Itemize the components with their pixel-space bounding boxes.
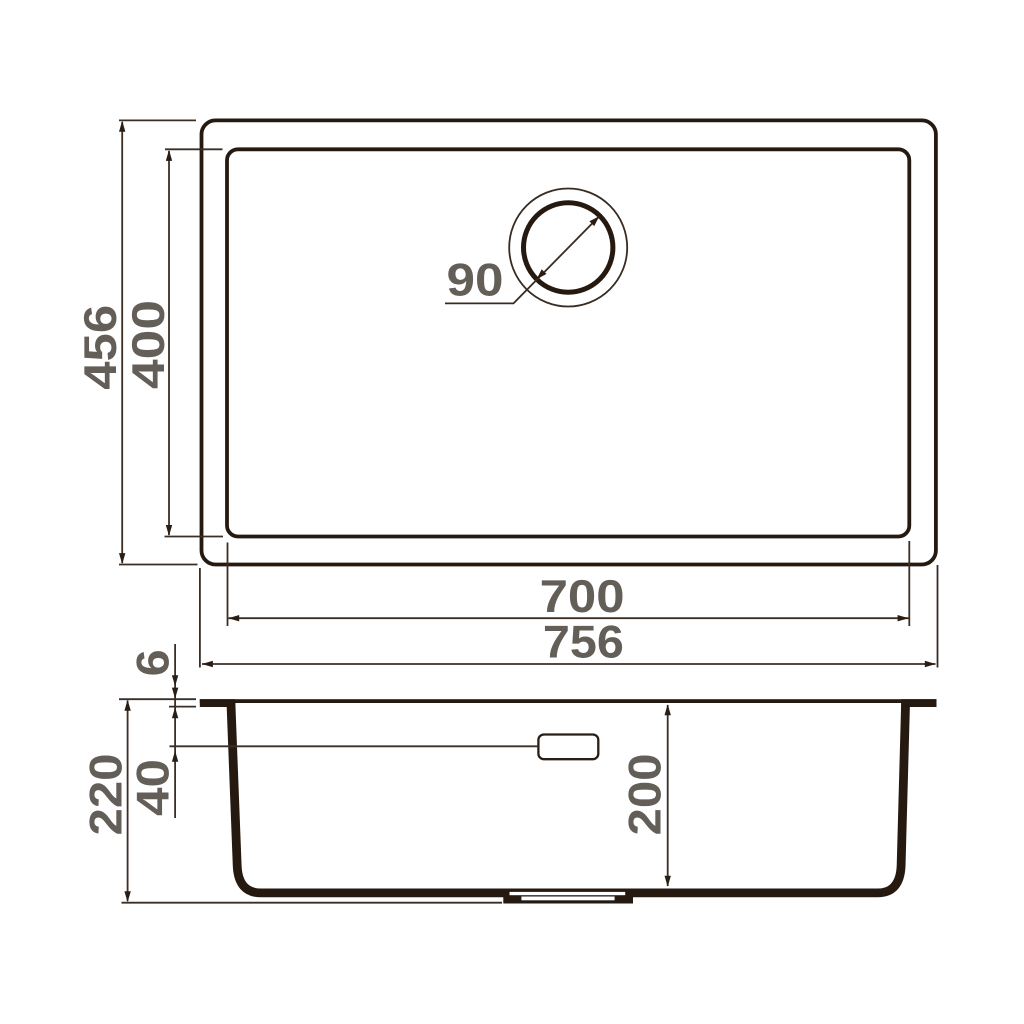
svg-text:756: 756 xyxy=(543,616,624,668)
svg-text:6: 6 xyxy=(127,649,179,676)
svg-text:400: 400 xyxy=(122,300,174,389)
svg-text:456: 456 xyxy=(74,305,126,390)
svg-text:700: 700 xyxy=(540,570,625,622)
svg-text:220: 220 xyxy=(80,754,132,836)
svg-text:40: 40 xyxy=(127,759,179,816)
svg-text:90: 90 xyxy=(447,254,504,306)
svg-text:200: 200 xyxy=(619,754,671,836)
